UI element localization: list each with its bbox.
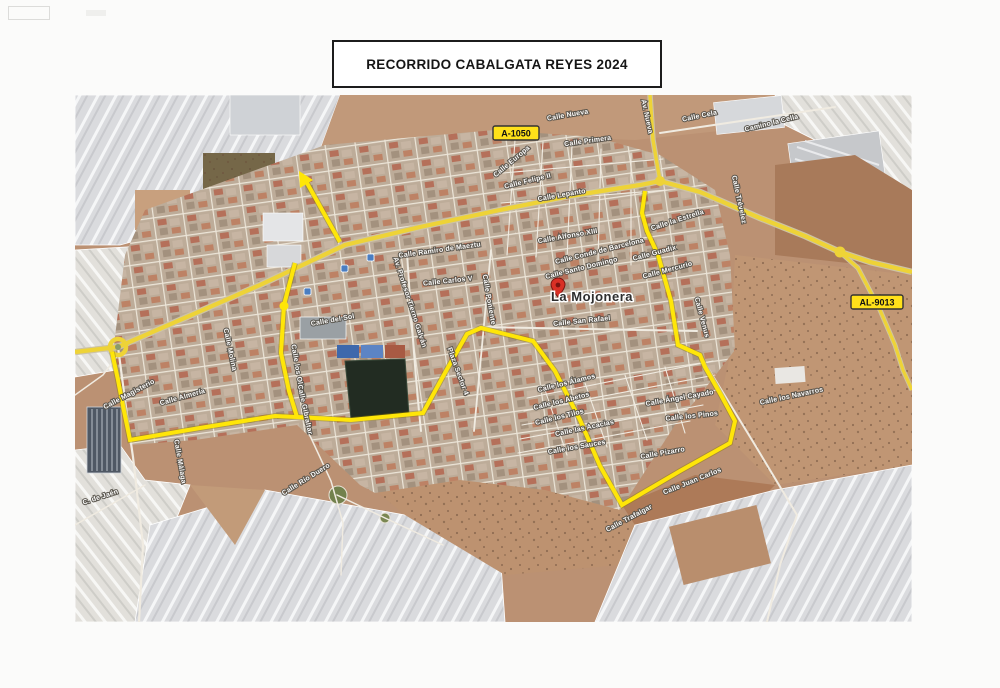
page-title: RECORRIDO CABALGATA REYES 2024: [366, 57, 628, 72]
place-label: La Mojonera: [551, 289, 633, 304]
road-badge-a1050: A-1050: [493, 126, 539, 140]
transit-stop-icon: [367, 254, 374, 261]
svg-text:AL-9013: AL-9013: [859, 298, 894, 308]
satellite-map: Calle Nueva Calle Primera Calle Felipe I…: [75, 95, 912, 622]
road-badge-al9013: AL-9013: [851, 295, 903, 309]
svg-text:A-1050: A-1050: [501, 129, 531, 139]
scan-artifact: [8, 6, 50, 20]
title-box: RECORRIDO CABALGATA REYES 2024: [332, 40, 662, 88]
route-map-image: Calle Nueva Calle Primera Calle Felipe I…: [75, 95, 912, 622]
pond: [345, 359, 409, 419]
transit-stop-icon: [341, 265, 348, 272]
scan-artifact: [86, 10, 106, 16]
transit-stop-icon: [304, 288, 311, 295]
route-endpoint-dot: [280, 302, 289, 311]
sports-courts: [337, 345, 405, 358]
